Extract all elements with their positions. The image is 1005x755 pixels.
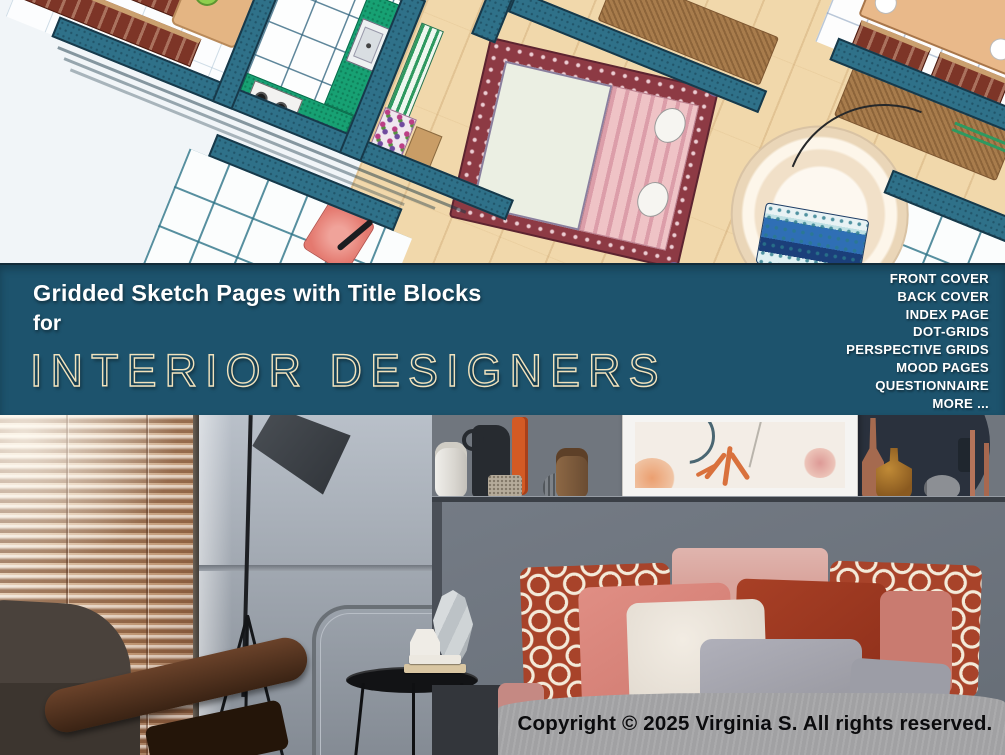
contents-item-mood-pages: MOOD PAGES <box>846 359 989 377</box>
contents-item-perspective-grids: PERSPECTIVE GRIDS <box>846 341 989 359</box>
headboard-shelf <box>432 415 1005 499</box>
book-cover: Gridded Sketch Pages with Title Blocks f… <box>0 0 1005 755</box>
copper-pipe <box>970 430 975 499</box>
copyright-text: Copyright © 2025 Virginia S. All rights … <box>505 712 1005 736</box>
slate-curve <box>659 422 715 464</box>
window-light <box>196 415 232 755</box>
floor-plan-photo <box>0 0 1005 263</box>
book <box>404 664 466 673</box>
stone-jar <box>488 475 522 498</box>
title-banner: Gridded Sketch Pages with Title Blocks f… <box>0 263 1005 415</box>
jug-handle <box>462 429 484 451</box>
marble-vase <box>435 442 467 498</box>
leaf-stroke <box>728 451 750 480</box>
bedroom-photo: Copyright © 2025 Virginia S. All rights … <box>0 415 1005 755</box>
grey-round-vase <box>924 475 960 499</box>
wall-molding-rail <box>196 565 432 571</box>
banner-for-label: for <box>33 312 61 336</box>
contents-item-front-cover: FRONT COVER <box>846 270 989 288</box>
stem-line <box>748 422 763 467</box>
banner-audience-title: INTERIOR DESIGNERS <box>30 345 667 397</box>
bronze-vase <box>556 448 588 498</box>
framed-artwork <box>622 415 858 499</box>
plate <box>986 35 1005 64</box>
rose-blob <box>803 448 837 478</box>
banner-title: Gridded Sketch Pages with Title Blocks <box>33 280 482 307</box>
contents-item-questionnaire: QUESTIONNAIRE <box>846 377 989 395</box>
contents-list: FRONT COVER BACK COVER INDEX PAGE DOT-GR… <box>846 270 989 412</box>
contents-item-more: MORE ... <box>846 395 989 413</box>
plate <box>871 0 900 17</box>
side-table-leg <box>412 683 415 755</box>
floor-plan-rotated-group <box>0 0 1005 263</box>
contents-item-dot-grids: DOT-GRIDS <box>846 323 989 341</box>
window-frame <box>193 415 199 755</box>
copper-pipe <box>984 443 989 499</box>
book <box>409 655 461 664</box>
artwork-canvas <box>635 422 845 488</box>
contents-item-back-cover: BACK COVER <box>846 288 989 306</box>
contents-item-index-page: INDEX PAGE <box>846 306 989 324</box>
peach-blob <box>635 458 675 488</box>
